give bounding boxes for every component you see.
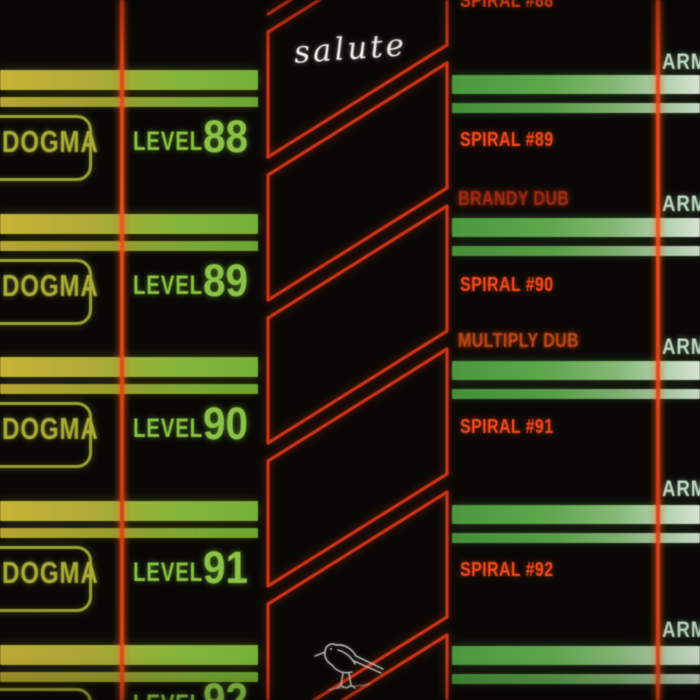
track-bar-thick bbox=[452, 646, 700, 665]
track-bar-thin bbox=[452, 389, 700, 399]
level-number: 91 bbox=[203, 545, 248, 590]
level-row: DOGMA LEVEL 89 bbox=[0, 214, 258, 357]
track-bar-thin bbox=[452, 674, 700, 684]
track-bar-thick bbox=[452, 218, 700, 237]
arm-edge-label: ARM bbox=[662, 478, 700, 500]
level-label: LEVEL bbox=[133, 415, 203, 442]
track-bar-thin bbox=[452, 533, 700, 543]
track-label-spiral-92: SPIRAL #92 bbox=[460, 560, 554, 580]
track-label-spiral-88: SPIRAL #88 bbox=[460, 0, 554, 11]
level-label: LEVEL bbox=[133, 272, 203, 299]
track-label-spiral-91: SPIRAL #91 bbox=[460, 417, 554, 437]
track-bar-row bbox=[452, 646, 700, 700]
arm-edge-label: ARM bbox=[662, 193, 700, 215]
track-bar-thick bbox=[452, 75, 700, 94]
level-row: DOGMA LEVEL 92 bbox=[0, 645, 258, 700]
track-bar-thin bbox=[452, 103, 700, 113]
dogma-badge-label: DOGMA bbox=[2, 557, 99, 588]
red-divider-line-right bbox=[656, 0, 660, 700]
arm-edge-label: ARM bbox=[662, 619, 700, 641]
level-bar-thick bbox=[0, 501, 258, 521]
track-bar-thick bbox=[452, 361, 700, 380]
dogma-badge-label: DOGMA bbox=[2, 270, 99, 301]
level-bar-thick bbox=[0, 70, 258, 90]
level-number: 92 bbox=[203, 677, 248, 700]
level-number: 90 bbox=[203, 401, 248, 446]
crt-scene: DOGMA LEVEL 88 DOGMA LEVEL 89 DOGMA LEVE… bbox=[0, 0, 700, 700]
level-number: 88 bbox=[203, 114, 248, 159]
red-divider-line-left bbox=[120, 0, 124, 700]
album-artwork-screen: DOGMA LEVEL 88 DOGMA LEVEL 89 DOGMA LEVE… bbox=[0, 0, 700, 700]
track-label-multiply-dub: MULTIPLY DUB bbox=[458, 331, 579, 351]
track-label-brandy-dub: BRANDY DUB bbox=[458, 189, 569, 209]
level-label: LEVEL bbox=[133, 559, 203, 586]
bird-line-drawing-icon bbox=[312, 634, 388, 698]
level-row: DOGMA LEVEL 90 bbox=[0, 357, 258, 500]
dogma-badge-label: DOGMA bbox=[2, 413, 99, 444]
level-label: LEVEL bbox=[133, 128, 203, 155]
level-bar-thin bbox=[0, 528, 258, 538]
dogma-badge-label: DOGMA bbox=[2, 126, 99, 157]
level-number: 89 bbox=[203, 258, 248, 303]
track-bar-thick bbox=[452, 505, 700, 524]
level-row: DOGMA LEVEL 91 bbox=[0, 501, 258, 644]
level-bar-thick bbox=[0, 645, 258, 665]
level-label: LEVEL bbox=[133, 691, 203, 700]
track-label-spiral-89: SPIRAL #89 bbox=[460, 130, 554, 150]
level-bar-thin bbox=[0, 384, 258, 394]
salute-signature: salute bbox=[293, 30, 408, 69]
arm-edge-label: ARM bbox=[662, 336, 700, 358]
level-bar-thick bbox=[0, 357, 258, 377]
level-bar-thick bbox=[0, 214, 258, 234]
track-bar-thin bbox=[452, 246, 700, 256]
level-bar-thin bbox=[0, 241, 258, 251]
arm-edge-label: ARM bbox=[662, 51, 700, 73]
chevron-ribbon-band bbox=[253, 0, 457, 700]
track-label-spiral-90: SPIRAL #90 bbox=[460, 275, 554, 295]
level-row: DOGMA LEVEL 88 bbox=[0, 70, 258, 213]
level-bar-thin bbox=[0, 97, 258, 107]
